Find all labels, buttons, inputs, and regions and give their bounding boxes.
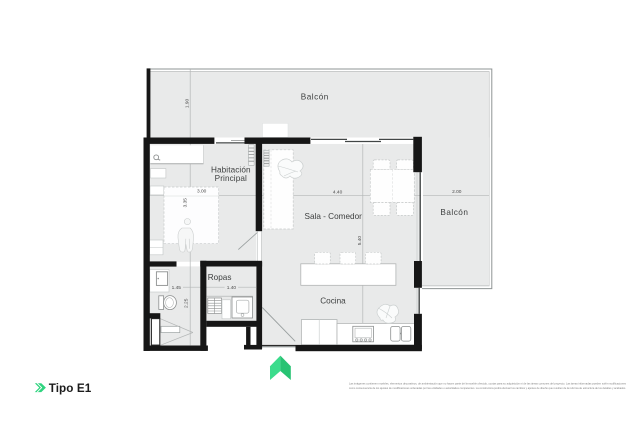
svg-text:Sala - Comedor: Sala - Comedor (305, 212, 363, 221)
svg-text:1.40: 1.40 (227, 285, 237, 291)
svg-text:Tipo E1: Tipo E1 (49, 382, 92, 395)
svg-text:2.00: 2.00 (452, 189, 462, 195)
svg-text:Principal: Principal (215, 174, 247, 183)
svg-text:4.40: 4.40 (333, 190, 343, 196)
svg-text:1.45: 1.45 (172, 285, 182, 291)
svg-text:Habitación: Habitación (211, 165, 251, 174)
svg-text:como consecuencia de los ajust: como consecuencia de los ajustes de modi… (349, 386, 626, 390)
svg-text:Ropas: Ropas (208, 273, 232, 282)
svg-text:3.35: 3.35 (183, 198, 189, 208)
svg-text:5.40: 5.40 (357, 236, 363, 246)
svg-text:2.25: 2.25 (184, 298, 190, 308)
svg-text:Cocina: Cocina (320, 297, 346, 306)
svg-text:Balcón: Balcón (301, 92, 329, 101)
svg-text:1.90: 1.90 (185, 99, 191, 109)
svg-text:3.00: 3.00 (197, 189, 207, 195)
svg-text:Balcón: Balcón (440, 208, 468, 217)
